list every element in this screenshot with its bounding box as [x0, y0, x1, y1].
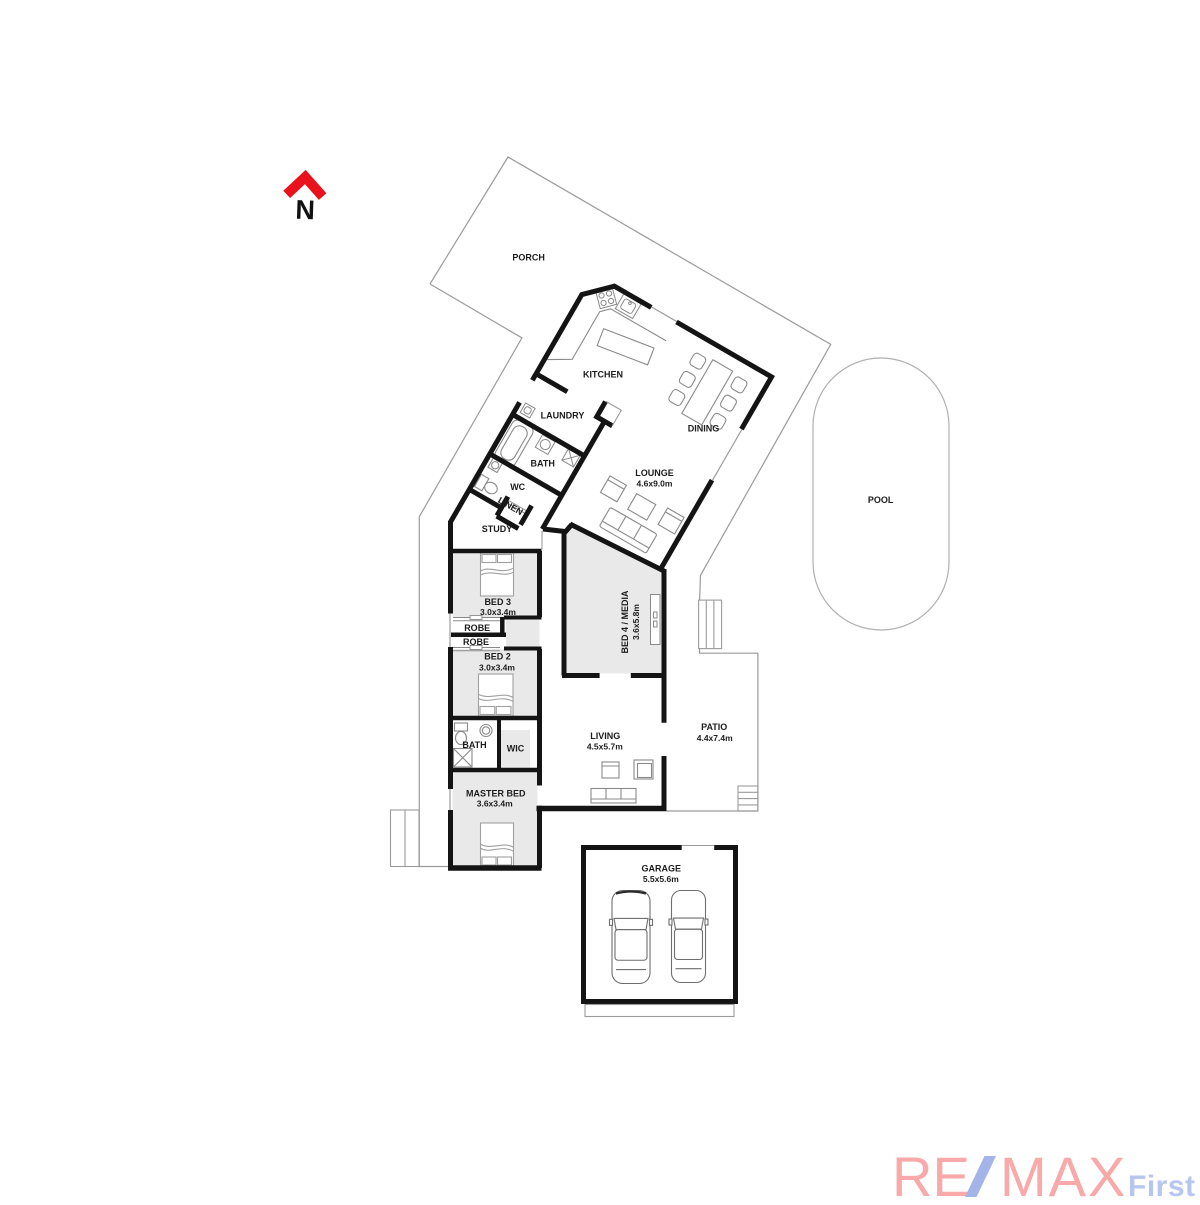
- svg-text:BATH: BATH: [531, 458, 555, 468]
- svg-text:PATIO: PATIO: [701, 722, 727, 732]
- svg-text:ROBE: ROBE: [463, 637, 489, 647]
- svg-text:N: N: [295, 195, 316, 226]
- svg-text:BED 2: BED 2: [484, 652, 511, 662]
- svg-text:KITCHEN: KITCHEN: [583, 370, 623, 380]
- svg-text:PORCH: PORCH: [512, 253, 545, 263]
- svg-text:POOL: POOL: [868, 495, 894, 505]
- svg-text:BED 4 / MEDIA: BED 4 / MEDIA: [620, 590, 630, 654]
- svg-text:GARAGE: GARAGE: [642, 864, 682, 874]
- svg-text:BATH: BATH: [462, 740, 486, 750]
- svg-text:3.6x5.8m: 3.6x5.8m: [631, 604, 641, 640]
- svg-text:3.0x3.4m: 3.0x3.4m: [480, 607, 516, 617]
- svg-text:First: First: [1128, 1170, 1196, 1200]
- svg-text:MASTER BED: MASTER BED: [466, 789, 526, 799]
- svg-text:LAUNDRY: LAUNDRY: [541, 411, 585, 421]
- svg-text:4.6x9.0m: 4.6x9.0m: [637, 479, 673, 489]
- svg-text:DINING: DINING: [688, 424, 720, 434]
- svg-text:WIC: WIC: [507, 744, 525, 754]
- svg-text:STUDY: STUDY: [482, 524, 513, 534]
- svg-text:BED 3: BED 3: [484, 597, 511, 607]
- svg-text:MAX: MAX: [1000, 1145, 1127, 1200]
- svg-text:3.6x3.4m: 3.6x3.4m: [477, 799, 513, 809]
- svg-text:5.5x5.6m: 5.5x5.6m: [643, 874, 679, 884]
- svg-text:ROBE: ROBE: [464, 623, 490, 633]
- svg-text:4.5x5.7m: 4.5x5.7m: [587, 742, 623, 752]
- svg-text:RE: RE: [892, 1145, 970, 1200]
- svg-text:LOUNGE: LOUNGE: [635, 468, 674, 478]
- svg-text:LIVING: LIVING: [590, 731, 620, 741]
- svg-text:WC: WC: [510, 482, 525, 492]
- svg-text:3.0x3.4m: 3.0x3.4m: [479, 663, 515, 673]
- svg-text:4.4x7.4m: 4.4x7.4m: [697, 733, 733, 743]
